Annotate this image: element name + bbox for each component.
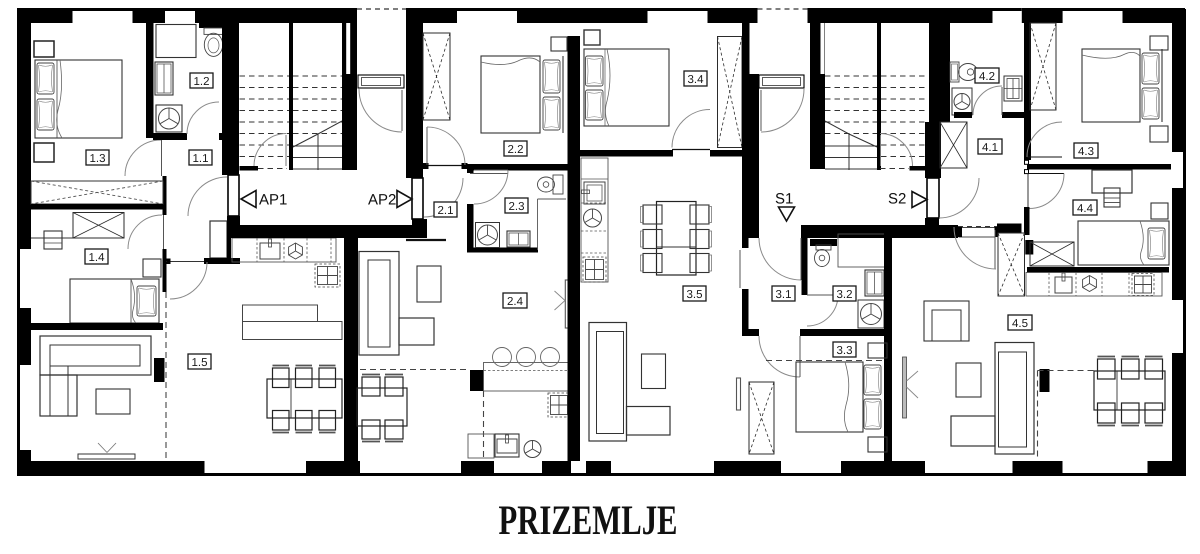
svg-text:4.1: 4.1: [982, 142, 998, 154]
svg-text:4.4: 4.4: [1077, 203, 1094, 215]
svg-text:2.1: 2.1: [438, 205, 454, 217]
svg-text:2.4: 2.4: [507, 296, 524, 308]
svg-text:1.3: 1.3: [90, 153, 106, 165]
svg-text:4.3: 4.3: [1078, 146, 1094, 158]
svg-text:1.1: 1.1: [193, 153, 209, 165]
svg-text:2.2: 2.2: [508, 144, 524, 156]
svg-text:3.1: 3.1: [776, 289, 792, 301]
svg-text:4.5: 4.5: [1012, 318, 1028, 330]
svg-text:3.3: 3.3: [837, 345, 853, 357]
svg-text:3.4: 3.4: [688, 74, 705, 86]
svg-text:2.3: 2.3: [509, 201, 525, 213]
svg-text:1.4: 1.4: [89, 252, 106, 264]
svg-text:1.2: 1.2: [194, 76, 210, 88]
svg-text:3.5: 3.5: [687, 289, 703, 301]
svg-text:S2: S2: [888, 191, 906, 208]
svg-text:3.2: 3.2: [837, 289, 853, 301]
svg-text:AP2: AP2: [368, 192, 396, 209]
svg-text:PRIZEMLJE: PRIZEMLJE: [499, 498, 678, 544]
svg-text:4.2: 4.2: [979, 71, 995, 83]
svg-text:AP1: AP1: [259, 192, 287, 209]
svg-text:S1: S1: [775, 191, 793, 208]
svg-text:1.5: 1.5: [192, 357, 208, 369]
